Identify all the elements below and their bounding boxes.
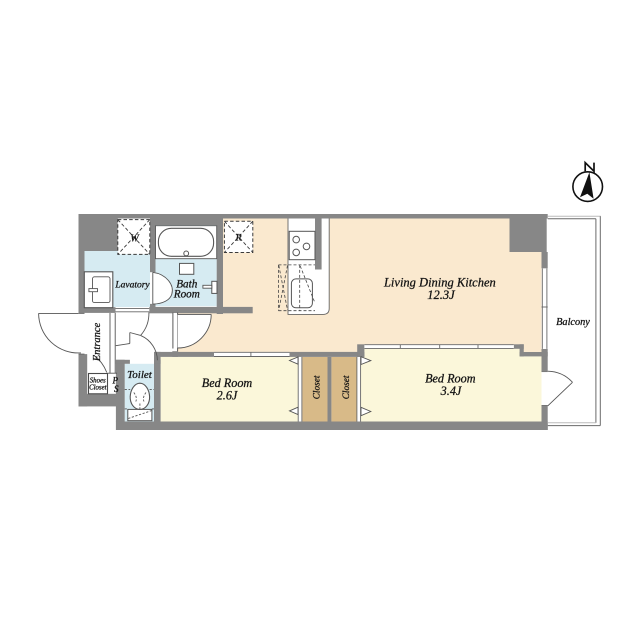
svg-text:Room: Room [173, 288, 200, 300]
svg-text:Lavatory: Lavatory [114, 281, 150, 291]
svg-text:Balcony: Balcony [556, 317, 590, 328]
svg-text:Toilet: Toilet [127, 369, 153, 381]
svg-text:Closet: Closet [342, 375, 352, 399]
svg-text:S: S [114, 384, 119, 394]
svg-text:Closet: Closet [89, 385, 107, 392]
svg-text:3.4J: 3.4J [440, 384, 462, 398]
svg-text:Entrance: Entrance [92, 322, 103, 362]
svg-text:Living Dining Kitchen: Living Dining Kitchen [383, 275, 496, 289]
svg-text:Shoes: Shoes [90, 377, 106, 384]
svg-text:12.3J: 12.3J [427, 288, 456, 302]
svg-text:Closet: Closet [313, 375, 323, 399]
svg-text:2.6J: 2.6J [217, 388, 238, 402]
svg-text:R: R [235, 232, 242, 243]
